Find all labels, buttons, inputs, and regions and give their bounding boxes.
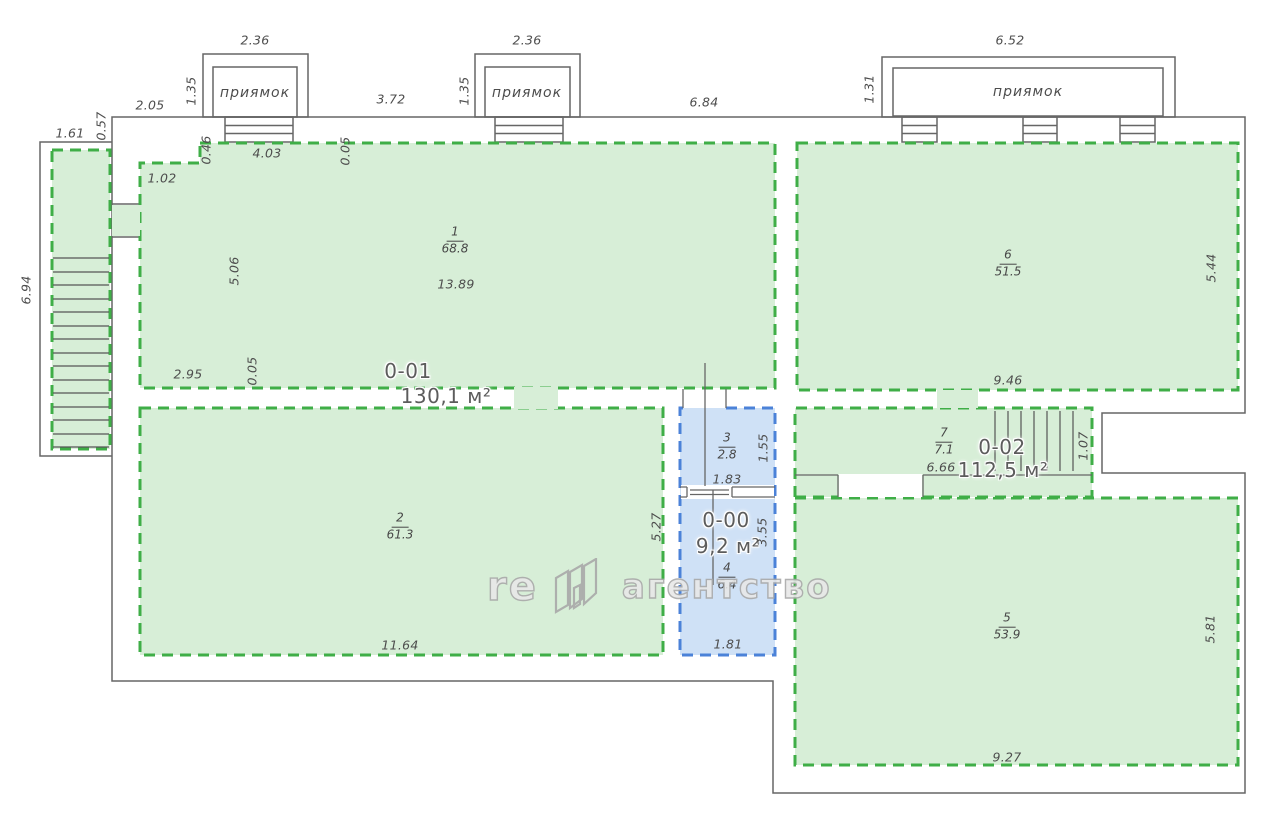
- dim-pit3-depth: 1.31: [862, 74, 877, 103]
- dim-r1-top-jog: 0.05: [338, 136, 353, 165]
- unit-0-01-code: 0-01: [384, 359, 431, 383]
- dim-pit3-width: 6.52: [995, 33, 1024, 48]
- room-3-area: 2.8: [717, 448, 736, 463]
- room-1-number: 1: [446, 226, 464, 242]
- dim-stair-offset: 0.57: [94, 111, 109, 140]
- dim-step-width: 1.02: [147, 171, 176, 186]
- room-4-label: 4 6.4: [717, 562, 736, 593]
- room-6-number: 6: [999, 249, 1017, 265]
- room-5-area: 53.9: [994, 628, 1021, 643]
- room-6-area: 51.5: [995, 265, 1022, 280]
- room-2-label: 2 61.3: [387, 512, 414, 543]
- dim-r3-right: 1.55: [756, 433, 771, 462]
- dim-r7-length: 6.66: [926, 460, 955, 475]
- unit-0-02-code: 0-02: [978, 435, 1025, 459]
- dim-r5-right: 5.81: [1203, 614, 1218, 643]
- dim-pit1-depth: 1.35: [184, 76, 199, 105]
- dim-r4-bottom: 1.81: [713, 637, 742, 652]
- room-5-number: 5: [998, 612, 1016, 628]
- room-4-number: 4: [718, 562, 736, 578]
- dim-r1-top: 4.03: [252, 146, 281, 161]
- room-7-number: 7: [935, 427, 953, 443]
- dim-r6-right: 5.44: [1204, 253, 1219, 282]
- unit-0-00-code: 0-00: [702, 508, 749, 532]
- dim-pit2-width: 2.36: [512, 33, 541, 48]
- dim-gap-left: 2.05: [135, 98, 164, 113]
- dim-r1-bottom-left: 2.95: [173, 367, 202, 382]
- dim-stair-length: 6.94: [19, 275, 34, 304]
- room-1-label: 1 68.8: [442, 226, 469, 257]
- dim-step-height: 0.46: [199, 135, 214, 164]
- dim-r5-bottom: 9.27: [992, 750, 1021, 765]
- dim-r1-bottom-jog: 0.05: [245, 356, 260, 385]
- room-2-area: 61.3: [387, 528, 414, 543]
- floor-plan: 2.36 1.35 приямок 2.05 3.72 2.36 1.35 пр…: [0, 0, 1269, 818]
- room-1-area: 68.8: [442, 242, 469, 257]
- pit3-label: приямок: [993, 84, 1063, 100]
- dim-r1-left: 5.06: [227, 256, 242, 285]
- room-6-label: 6 51.5: [995, 249, 1022, 280]
- room-7-area: 7.1: [934, 443, 953, 458]
- dim-r4-right: 3.55: [755, 517, 770, 546]
- dim-stairs2-width: 1.07: [1076, 431, 1091, 460]
- room-5-label: 5 53.9: [994, 612, 1021, 643]
- room-7-label: 7 7.1: [934, 427, 953, 458]
- dim-r1-width: 13.89: [437, 277, 474, 292]
- dim-gap-mid: 3.72: [376, 92, 405, 107]
- room-4-area: 6.4: [717, 578, 736, 593]
- dim-pit1-width: 2.36: [240, 33, 269, 48]
- room-2-number: 2: [391, 512, 409, 528]
- dim-pit2-depth: 1.35: [457, 76, 472, 105]
- unit-0-01-area: 130,1 м²: [401, 384, 492, 408]
- dim-r3-bottom: 1.83: [712, 472, 741, 487]
- pit2-label: приямок: [492, 85, 562, 101]
- unit-0-02-area: 112,5 м²: [958, 458, 1049, 482]
- floorplan-geometry: [0, 0, 1269, 818]
- pit1-label: приямок: [220, 85, 290, 101]
- dim-r2-bottom: 11.64: [381, 638, 418, 653]
- room-3-label: 3 2.8: [717, 432, 736, 463]
- dim-r2-right: 5.27: [649, 512, 664, 541]
- room-3-number: 3: [718, 432, 736, 448]
- dim-r6-bottom: 9.46: [993, 373, 1022, 388]
- unit-0-00-area: 9,2 м²: [696, 534, 760, 558]
- dim-stair-width: 1.61: [55, 126, 84, 141]
- dim-gap-right: 6.84: [689, 95, 718, 110]
